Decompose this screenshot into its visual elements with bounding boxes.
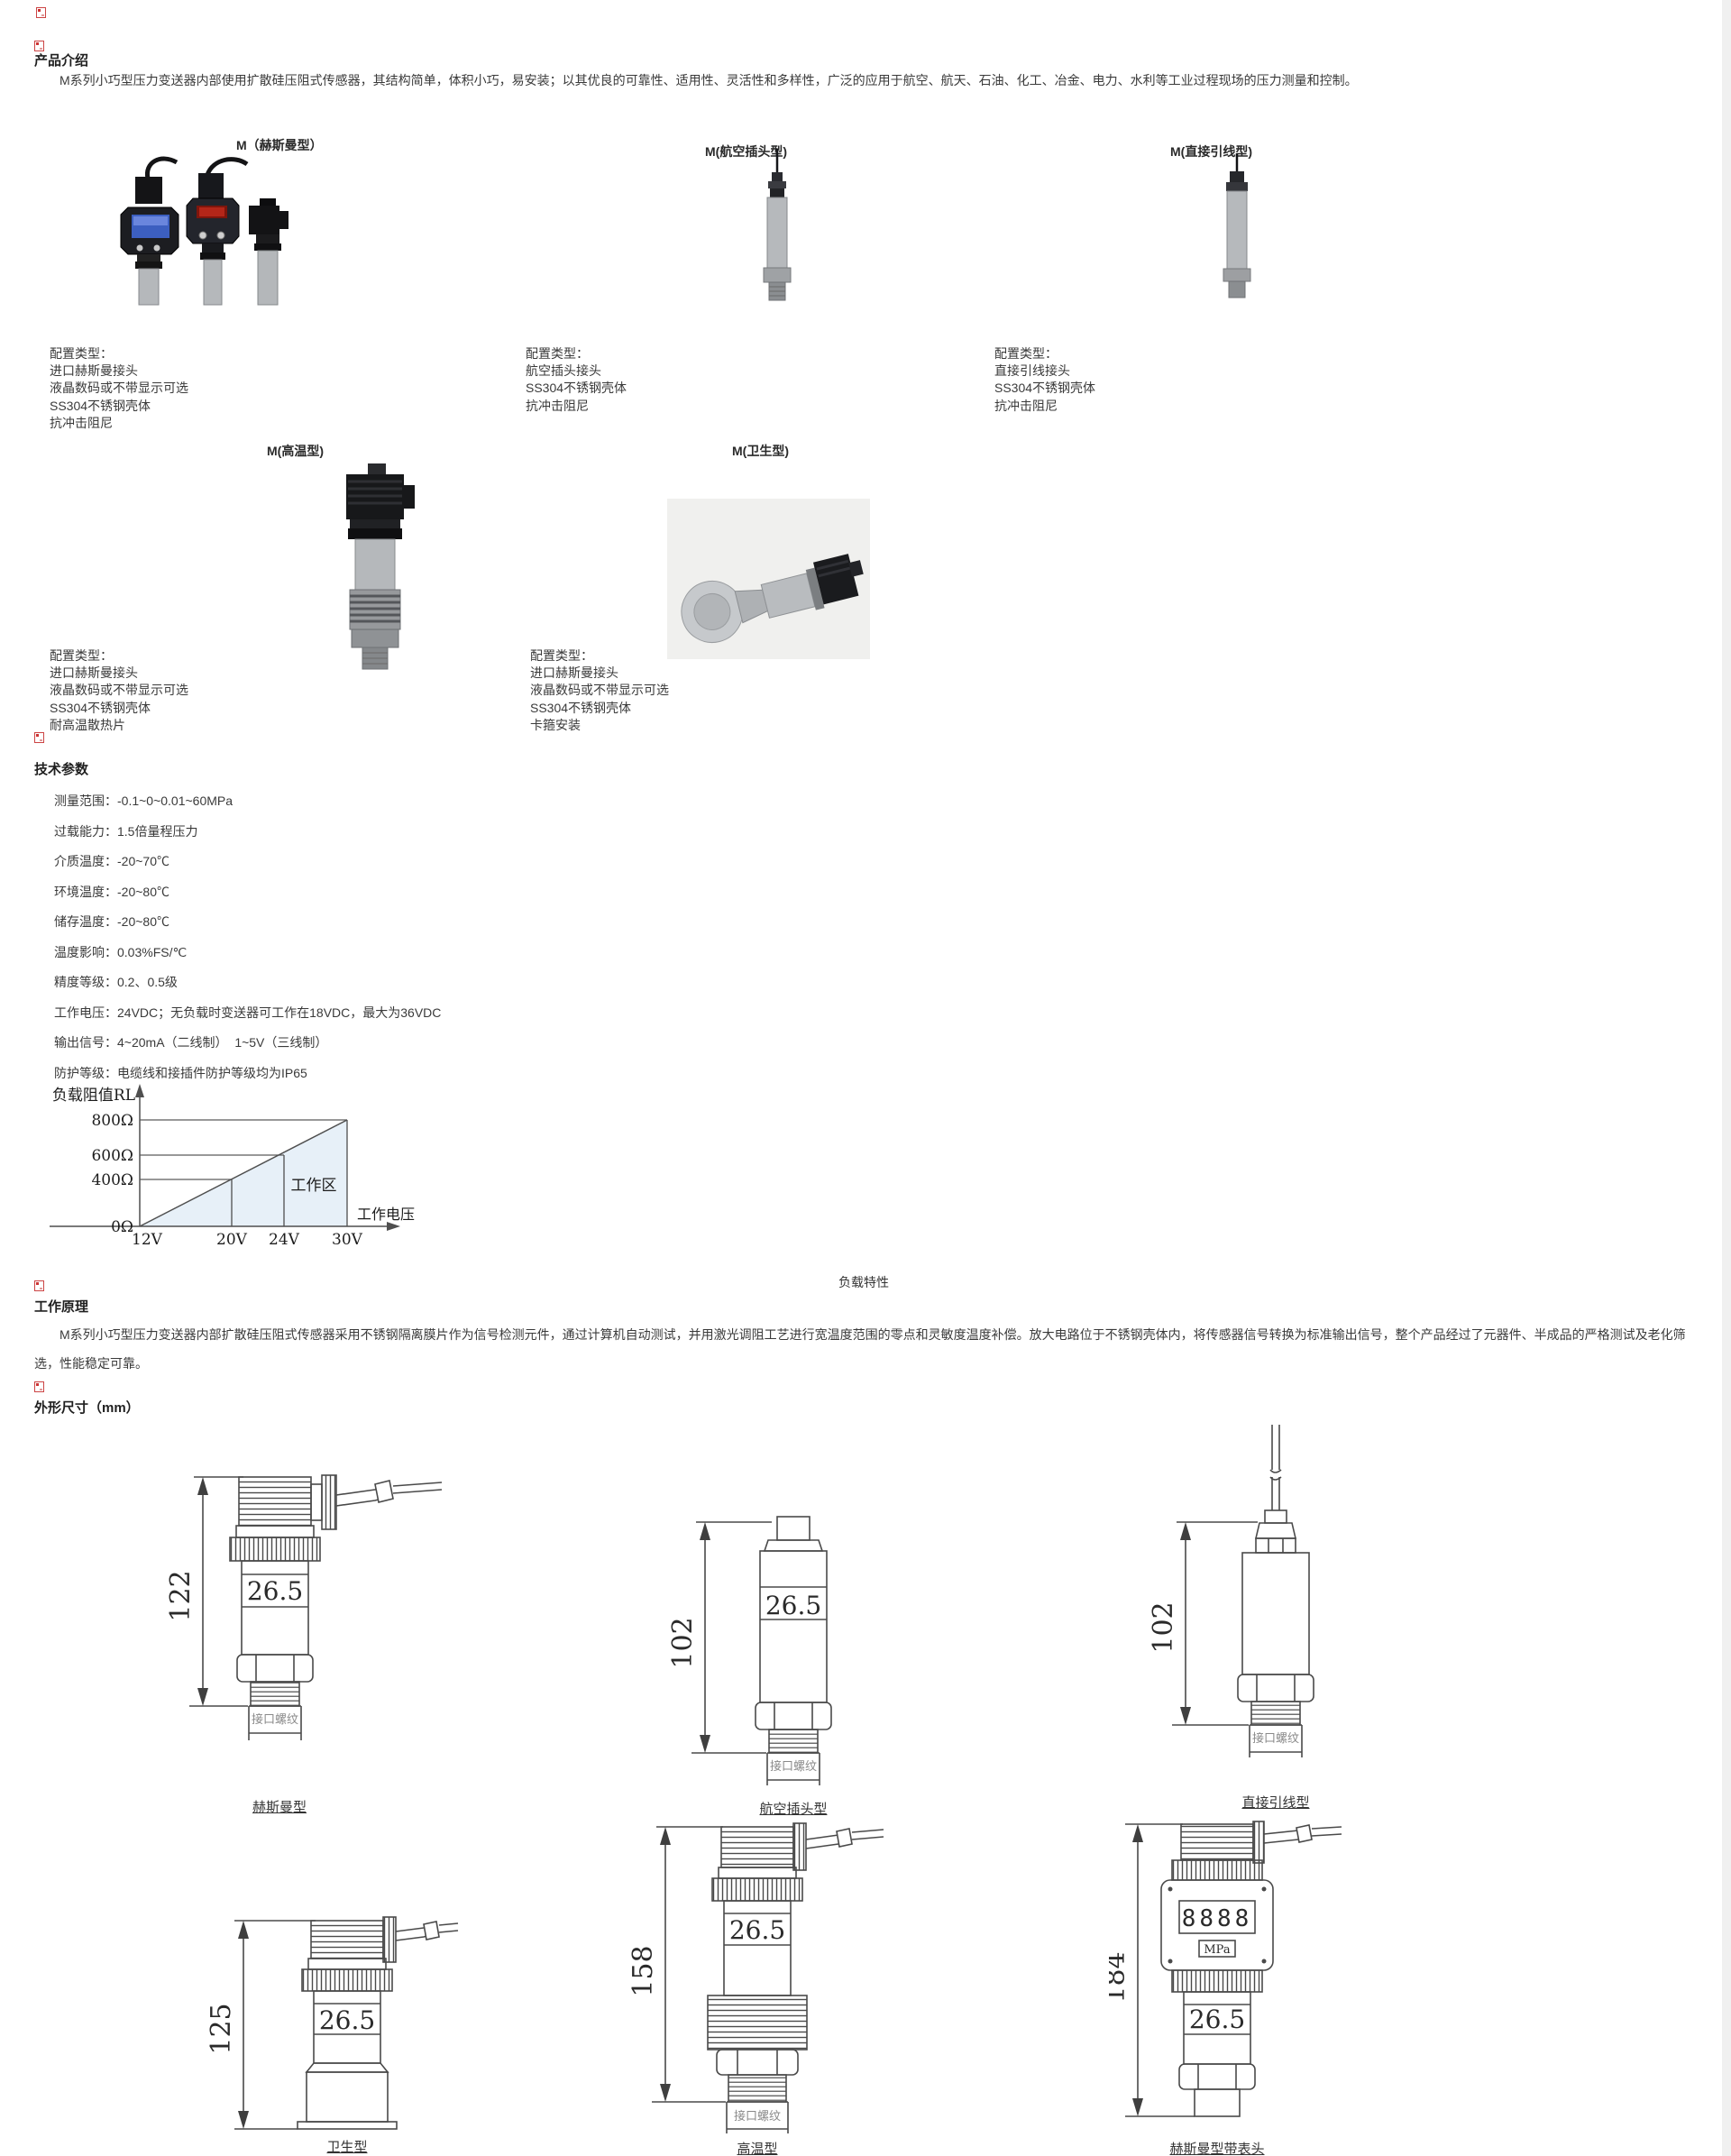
broken-image-icon bbox=[36, 7, 46, 18]
section-title-dimensions: 外形尺寸（mm） bbox=[34, 1398, 140, 1417]
product-datasheet-page: 产品介绍 M系列小巧型压力变送器内部使用扩散硅压阻式传感器，其结构简单，体积小巧… bbox=[0, 0, 1731, 2156]
product-photo-aviation bbox=[750, 149, 804, 304]
config-line: 抗冲击阻尼 bbox=[994, 398, 1095, 415]
param-line: 输出信号：4~20mA（二线制） 1~5V（三线制） bbox=[54, 1028, 441, 1059]
config-line: SS304不锈钢壳体 bbox=[50, 398, 188, 415]
drawing-directwire: 102 接口螺纹 bbox=[1145, 1425, 1415, 1803]
y-tick-600: 600Ω bbox=[91, 1147, 133, 1165]
config-line: SS304不锈钢壳体 bbox=[50, 700, 188, 717]
principle-paragraph: M系列小巧型压力变送器内部扩散硅压阻式传感器采用不锈钢隔离膜片作为信号检测元件，… bbox=[34, 1320, 1707, 1378]
config-line: 配置类型： bbox=[526, 345, 627, 362]
config-list-hirschmann: 配置类型： 进口赫斯曼接头 液晶数码或不带显示可选 SS304不锈钢壳体 抗冲击… bbox=[50, 345, 188, 432]
chart-region-label: 工作区 bbox=[291, 1177, 337, 1195]
x-tick-20v: 20V bbox=[216, 1231, 248, 1249]
drawing-label-directwire: 直接引线型 bbox=[1204, 1793, 1348, 1812]
drawing-label-hirschmann: 赫斯曼型 bbox=[203, 1797, 356, 1816]
drawing-label-sanitary: 卫生型 bbox=[275, 2137, 419, 2156]
dim-height: 102 bbox=[1148, 1601, 1179, 1653]
chart-caption: 负载特性 bbox=[838, 1273, 889, 1291]
display-digits: 8888 bbox=[1182, 1905, 1253, 1932]
config-line: 航空插头接头 bbox=[526, 362, 627, 380]
dim-height: 122 bbox=[165, 1570, 197, 1621]
thread-label: 接口螺纹 bbox=[1252, 1731, 1299, 1745]
x-tick-24v: 24V bbox=[269, 1231, 300, 1249]
drawing-hightemp: 158 26.5 接口螺纹 bbox=[622, 1820, 893, 2137]
product-photo-sanitary bbox=[667, 499, 870, 659]
drawing-label-hightemp: 高温型 bbox=[685, 2139, 829, 2156]
y-tick-400: 400Ω bbox=[91, 1171, 133, 1189]
product-photo-hightemp bbox=[321, 462, 438, 676]
intro-paragraph: M系列小巧型压力变送器内部使用扩散硅压阻式传感器，其结构简单，体积小巧，易安装；… bbox=[34, 69, 1698, 92]
dim-width: 26.5 bbox=[247, 1576, 303, 1606]
config-line: 进口赫斯曼接头 bbox=[50, 665, 188, 682]
thread-label: 接口螺纹 bbox=[734, 2109, 781, 2123]
config-line: 配置类型： bbox=[50, 345, 188, 362]
param-line: 测量范围：-0.1~0~0.01~60MPa bbox=[54, 786, 441, 817]
drawing-aviation: 102 26.5 接口螺纹 bbox=[667, 1508, 938, 1794]
drawing-hirschmann: 122 26.5 接口螺纹 bbox=[162, 1470, 460, 1794]
x-tick-12v: 12V bbox=[132, 1231, 163, 1249]
section-marker-icon bbox=[34, 1280, 44, 1291]
config-line: 直接引线接头 bbox=[994, 362, 1095, 380]
dim-height: 158 bbox=[627, 1945, 659, 1996]
drawing-label-aviation: 航空插头型 bbox=[721, 1799, 865, 1818]
display-unit-label: MPa bbox=[1204, 1943, 1230, 1957]
chart-x-axis-label: 工作电压 bbox=[357, 1206, 415, 1223]
param-line: 环境温度：-20~80℃ bbox=[54, 877, 441, 908]
product-title-hirschmann: M（赫斯曼型） bbox=[236, 136, 323, 154]
config-line: SS304不锈钢壳体 bbox=[526, 380, 627, 397]
dim-height: 125 bbox=[207, 2003, 237, 2054]
product-title-sanitary: M(卫生型) bbox=[732, 442, 789, 460]
y-tick-800: 800Ω bbox=[91, 1112, 133, 1130]
config-line: 耐高温散热片 bbox=[50, 717, 188, 734]
chart-y-axis-label: 负载阻值RL bbox=[52, 1087, 135, 1105]
config-line: 抗冲击阻尼 bbox=[526, 398, 627, 415]
drawing-display-head: 8888 MPa 184 26.5 bbox=[1109, 1820, 1397, 2137]
config-line: 液晶数码或不带显示可选 bbox=[50, 380, 188, 397]
product-photo-hirschmann-group bbox=[101, 153, 292, 307]
y-tick-0: 0Ω bbox=[111, 1218, 133, 1236]
config-line: 进口赫斯曼接头 bbox=[530, 665, 669, 682]
param-line: 储存温度：-20~80℃ bbox=[54, 907, 441, 938]
config-line: 液晶数码或不带显示可选 bbox=[530, 682, 669, 699]
config-line: SS304不锈钢壳体 bbox=[530, 700, 669, 717]
product-photo-directwire bbox=[1210, 153, 1264, 299]
section-title-tech: 技术参数 bbox=[34, 759, 88, 778]
config-list-sanitary: 配置类型： 进口赫斯曼接头 液晶数码或不带显示可选 SS304不锈钢壳体 卡箍安… bbox=[530, 647, 669, 734]
dim-width: 26.5 bbox=[765, 1591, 821, 1620]
config-line: 卡箍安装 bbox=[530, 717, 669, 734]
thread-label: 接口螺纹 bbox=[770, 1759, 817, 1773]
thread-label: 接口螺纹 bbox=[252, 1712, 298, 1726]
param-line: 精度等级：0.2、0.5级 bbox=[54, 968, 441, 998]
config-list-hightemp: 配置类型： 进口赫斯曼接头 液晶数码或不带显示可选 SS304不锈钢壳体 耐高温… bbox=[50, 647, 188, 734]
config-line: 进口赫斯曼接头 bbox=[50, 362, 188, 380]
product-title-hightemp: M(高温型) bbox=[267, 442, 324, 460]
param-line: 温度影响：0.03%FS/℃ bbox=[54, 938, 441, 968]
section-marker-icon bbox=[34, 732, 44, 743]
config-line: 配置类型： bbox=[530, 647, 669, 665]
config-line: 液晶数码或不带显示可选 bbox=[50, 682, 188, 699]
drawing-sanitary: 125 26.5 bbox=[207, 1913, 460, 2137]
scrollbar[interactable] bbox=[1722, 0, 1731, 2156]
dim-width: 26.5 bbox=[729, 1915, 785, 1945]
config-line: SS304不锈钢壳体 bbox=[994, 380, 1095, 397]
dim-width: 26.5 bbox=[1189, 2005, 1245, 2034]
x-tick-30v: 30V bbox=[332, 1231, 363, 1249]
drawing-label-display-head: 赫斯曼型带表头 bbox=[1127, 2139, 1307, 2156]
config-line: 配置类型： bbox=[994, 345, 1095, 362]
dim-height: 102 bbox=[667, 1617, 699, 1668]
tech-params-list: 测量范围：-0.1~0~0.01~60MPa 过载能力：1.5倍量程压力 介质温… bbox=[54, 786, 441, 1088]
config-line: 配置类型： bbox=[50, 647, 188, 665]
section-marker-icon bbox=[34, 1381, 44, 1392]
param-line: 过载能力：1.5倍量程压力 bbox=[54, 817, 441, 848]
config-list-aviation: 配置类型： 航空插头接头 SS304不锈钢壳体 抗冲击阻尼 bbox=[526, 345, 627, 415]
dim-height: 184 bbox=[1109, 1951, 1131, 2003]
section-title-intro: 产品介绍 bbox=[34, 50, 88, 69]
section-title-principle: 工作原理 bbox=[34, 1297, 88, 1316]
dim-width: 26.5 bbox=[319, 2005, 375, 2035]
config-list-directwire: 配置类型： 直接引线接头 SS304不锈钢壳体 抗冲击阻尼 bbox=[994, 345, 1095, 415]
param-line: 工作电压：24VDC；无负载时变送器可工作在18VDC，最大为36VDC bbox=[54, 998, 441, 1029]
config-line: 抗冲击阻尼 bbox=[50, 415, 188, 432]
load-characteristic-chart: 负载阻值RL 800Ω 600Ω 400Ω 0Ω 12V 20V 24V 30V… bbox=[36, 1082, 460, 1250]
param-line: 介质温度：-20~70℃ bbox=[54, 847, 441, 877]
